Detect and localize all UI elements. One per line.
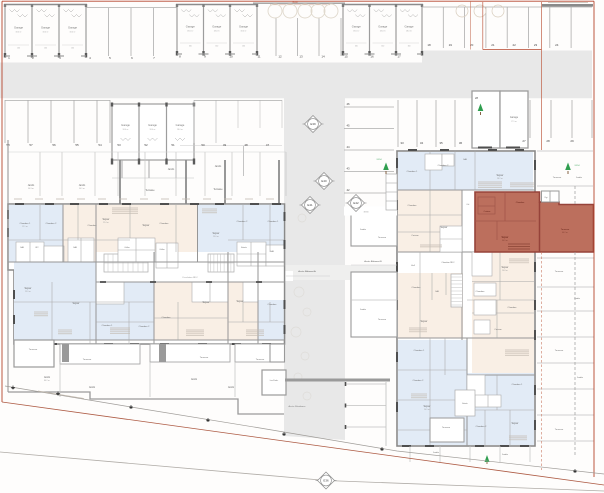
svg-text:18.0 m²: 18.0 m² xyxy=(122,128,128,131)
svg-text:33: 33 xyxy=(400,141,404,145)
svg-text:Jardin: Jardin xyxy=(89,386,96,389)
svg-text:Jardin: Jardin xyxy=(79,184,86,187)
svg-text:Garage: Garage xyxy=(41,25,50,29)
svg-text:Chambre 2: Chambre 2 xyxy=(139,325,151,328)
svg-text:18.0 m²: 18.0 m² xyxy=(214,29,220,32)
svg-text:16: 16 xyxy=(370,55,374,59)
svg-text:Cel.: Cel. xyxy=(466,204,470,206)
svg-text:18.0 m²: 18.0 m² xyxy=(42,30,48,33)
svg-text:38.80: 38.80 xyxy=(363,212,369,214)
svg-text:Jardin: Jardin xyxy=(191,378,198,381)
svg-text:Terrasse: Terrasse xyxy=(442,426,451,429)
svg-text:Chambre 1: Chambre 1 xyxy=(102,324,114,327)
svg-text:12: 12 xyxy=(278,55,282,59)
svg-text:Cellier: Cellier xyxy=(124,246,130,249)
svg-text:Terrasse: Terrasse xyxy=(555,349,564,352)
svg-text:49: 49 xyxy=(223,143,227,147)
svg-text:E39: E39 xyxy=(310,122,316,126)
svg-text:Séjour: Séjour xyxy=(441,226,448,229)
svg-text:Chambre: Chambre xyxy=(160,222,170,225)
svg-text:86.2 m²: 86.2 m² xyxy=(44,379,50,382)
svg-text:57: 57 xyxy=(29,143,33,147)
svg-text:Garage: Garage xyxy=(121,123,130,127)
svg-text:Jardin: Jardin xyxy=(228,386,235,389)
svg-text:Garage: Garage xyxy=(176,123,185,127)
svg-text:Chambre: Chambre xyxy=(162,316,172,319)
svg-text:Chambre 2: Chambre 2 xyxy=(413,379,425,382)
svg-text:Terrasse: Terrasse xyxy=(378,236,387,239)
svg-text:Jardin: Jardin xyxy=(576,176,583,179)
svg-text:35: 35 xyxy=(439,141,443,145)
svg-text:Séjour: Séjour xyxy=(25,287,32,290)
svg-text:Garage: Garage xyxy=(68,25,77,29)
svg-text:E40: E40 xyxy=(321,179,327,183)
svg-text:Terrasse: Terrasse xyxy=(555,270,564,273)
svg-text:28.2 m²: 28.2 m² xyxy=(497,177,503,180)
svg-text:Garage: Garage xyxy=(510,116,519,119)
svg-text:18.0 m²: 18.0 m² xyxy=(149,128,155,131)
svg-text:50: 50 xyxy=(201,143,205,147)
svg-text:Garage: Garage xyxy=(186,24,195,28)
svg-text:24.9 m²: 24.9 m² xyxy=(424,408,430,411)
svg-text:24.54: 24.54 xyxy=(376,159,382,161)
svg-text:10: 10 xyxy=(229,55,233,59)
svg-text:18.0 m²: 18.0 m² xyxy=(69,30,75,33)
svg-text:Chambre 1: Chambre 1 xyxy=(20,222,32,225)
svg-text:18: 18 xyxy=(427,43,431,47)
svg-text:11: 11 xyxy=(257,55,260,59)
svg-text:29: 29 xyxy=(570,139,574,143)
svg-text:Jardin: Jardin xyxy=(502,453,509,456)
svg-text:46: 46 xyxy=(346,102,350,106)
svg-text:160: 160 xyxy=(44,48,47,50)
svg-text:Chambre: Chambre xyxy=(516,201,525,204)
svg-text:Cuisine: Cuisine xyxy=(411,235,419,237)
svg-text:Chambre: Chambre xyxy=(476,290,486,293)
svg-text:34: 34 xyxy=(420,141,424,145)
svg-text:54: 54 xyxy=(98,143,102,147)
svg-text:Séjour: Séjour xyxy=(203,301,210,304)
svg-text:Jardin: Jardin xyxy=(577,376,584,379)
svg-text:35.60: 35.60 xyxy=(292,2,298,4)
svg-text:13: 13 xyxy=(299,55,303,59)
svg-text:Cellier: Cellier xyxy=(159,248,165,251)
svg-text:160: 160 xyxy=(381,46,384,48)
svg-text:Terrasse: Terrasse xyxy=(555,428,564,431)
svg-text:E36: E36 xyxy=(323,479,329,483)
svg-text:18.0 m²: 18.0 m² xyxy=(380,29,386,32)
svg-text:53: 53 xyxy=(117,143,121,147)
svg-text:Cuisine: Cuisine xyxy=(494,329,502,331)
svg-text:24: 24 xyxy=(555,43,559,47)
svg-text:Garage: Garage xyxy=(148,123,157,127)
svg-text:Accès Bâtiment A: Accès Bâtiment A xyxy=(298,270,316,273)
svg-text:Séjour: Séjour xyxy=(143,224,150,227)
svg-text:21: 21 xyxy=(491,43,495,47)
svg-text:Chambre 2: Chambre 2 xyxy=(46,222,58,225)
svg-text:56: 56 xyxy=(52,143,56,147)
svg-text:Séjour: Séjour xyxy=(502,266,509,269)
svg-text:Chambre: Chambre xyxy=(88,224,98,227)
svg-text:18.0 m²: 18.0 m² xyxy=(353,29,359,32)
svg-text:55: 55 xyxy=(75,143,79,147)
svg-text:160: 160 xyxy=(242,46,245,48)
svg-text:Terrasse: Terrasse xyxy=(145,189,155,192)
svg-text:Terrasse: Terrasse xyxy=(213,188,223,191)
svg-text:26.8 m²: 26.8 m² xyxy=(502,269,508,272)
svg-text:Chambre 2: Chambre 2 xyxy=(476,425,488,428)
svg-text:Garage: Garage xyxy=(212,24,221,28)
svg-text:Terrasse: Terrasse xyxy=(29,348,38,351)
svg-text:44: 44 xyxy=(346,145,350,149)
svg-text:Séjour: Séjour xyxy=(421,320,428,323)
svg-text:48: 48 xyxy=(244,143,248,147)
svg-text:19: 19 xyxy=(449,43,453,47)
svg-text:45: 45 xyxy=(346,124,350,128)
svg-text:Séjour: Séjour xyxy=(213,232,220,235)
svg-text:28: 28 xyxy=(546,139,550,143)
svg-text:50.1 m²: 50.1 m² xyxy=(79,187,85,190)
svg-text:Jardin: Jardin xyxy=(44,376,51,379)
svg-text:52: 52 xyxy=(144,143,148,147)
svg-text:Terrasse: Terrasse xyxy=(378,318,387,321)
svg-text:Entrée: Entrée xyxy=(241,246,247,249)
svg-text:Accès Bâtiment B: Accès Bâtiment B xyxy=(364,260,382,263)
svg-text:Garage: Garage xyxy=(239,24,248,28)
svg-text:Jardin: Jardin xyxy=(360,228,367,231)
svg-text:24.54: 24.54 xyxy=(574,165,580,167)
svg-text:Terrasse: Terrasse xyxy=(200,356,209,359)
svg-text:Chambre 1: Chambre 1 xyxy=(268,220,280,223)
svg-text:160: 160 xyxy=(408,46,411,48)
svg-text:Garage: Garage xyxy=(405,24,414,28)
svg-text:15: 15 xyxy=(344,55,348,59)
svg-text:E42: E42 xyxy=(353,201,359,205)
svg-text:Cuisine: Cuisine xyxy=(484,211,492,213)
svg-text:Chambre: Chambre xyxy=(412,286,422,289)
svg-text:Chambre RDC: Chambre RDC xyxy=(441,262,455,264)
svg-text:Terrasse: Terrasse xyxy=(561,228,570,231)
svg-text:Séjour: Séjour xyxy=(73,302,80,305)
svg-text:42: 42 xyxy=(346,188,350,192)
svg-text:Garage: Garage xyxy=(14,25,23,29)
svg-text:18.0 m²: 18.0 m² xyxy=(187,29,193,32)
svg-text:Séjour: Séjour xyxy=(497,174,504,177)
svg-text:Chambre 2: Chambre 2 xyxy=(438,164,450,167)
svg-text:160: 160 xyxy=(71,48,74,50)
svg-text:160: 160 xyxy=(215,46,218,48)
svg-text:Jardin: Jardin xyxy=(168,168,175,171)
svg-text:Chambre 1: Chambre 1 xyxy=(407,170,419,173)
svg-text:Garage: Garage xyxy=(352,24,361,28)
svg-text:Terrasse: Terrasse xyxy=(553,176,562,179)
svg-text:18.0 m²: 18.0 m² xyxy=(406,29,412,32)
svg-text:Séjour: Séjour xyxy=(502,236,509,239)
svg-text:12.1 m²: 12.1 m² xyxy=(22,225,28,228)
svg-text:Séjour: Séjour xyxy=(424,405,431,408)
svg-text:43: 43 xyxy=(346,167,350,171)
svg-text:17.5 m²: 17.5 m² xyxy=(511,120,517,123)
svg-text:23: 23 xyxy=(534,43,538,47)
svg-text:Jardin: Jardin xyxy=(215,165,222,168)
svg-text:160: 160 xyxy=(355,46,358,48)
svg-text:14: 14 xyxy=(321,55,325,59)
svg-text:Séjour: Séjour xyxy=(512,422,519,425)
svg-text:Chambre: Chambre xyxy=(508,306,518,309)
svg-text:22.4 m²: 22.4 m² xyxy=(103,221,109,224)
svg-text:Chambre: Chambre xyxy=(408,204,418,207)
svg-text:Circulation RDC: Circulation RDC xyxy=(182,276,198,279)
svg-text:47: 47 xyxy=(266,143,270,147)
svg-text:160: 160 xyxy=(17,48,20,50)
svg-text:Garage: Garage xyxy=(378,24,387,28)
svg-text:Jardin: Jardin xyxy=(360,308,367,311)
svg-text:Chambre: Chambre xyxy=(268,303,278,306)
svg-text:Chambre 1: Chambre 1 xyxy=(512,383,524,386)
svg-text:17: 17 xyxy=(397,55,401,59)
svg-text:Jardin: Jardin xyxy=(433,451,440,454)
svg-text:36: 36 xyxy=(459,141,463,145)
svg-text:22: 22 xyxy=(513,43,517,47)
svg-text:Chambre 2: Chambre 2 xyxy=(237,220,249,223)
svg-text:23.0 m²: 23.0 m² xyxy=(213,235,219,238)
svg-text:Accès Résidence: Accès Résidence xyxy=(289,405,307,408)
svg-text:Entrée: Entrée xyxy=(462,402,467,405)
svg-text:Séjour: Séjour xyxy=(237,300,244,303)
svg-text:25.9 m²: 25.9 m² xyxy=(25,290,31,293)
svg-text:51: 51 xyxy=(171,143,175,147)
svg-text:E41: E41 xyxy=(307,203,313,207)
svg-text:18.0 m²: 18.0 m² xyxy=(15,30,21,33)
svg-text:54.3 m²: 54.3 m² xyxy=(28,187,34,190)
svg-text:160: 160 xyxy=(189,46,192,48)
svg-text:Hall: Hall xyxy=(411,265,415,267)
svg-text:Loc.Poub.: Loc.Poub. xyxy=(270,380,279,382)
svg-text:Jardin: Jardin xyxy=(28,184,35,187)
svg-text:Terrasse: Terrasse xyxy=(83,358,92,361)
svg-text:27: 27 xyxy=(522,139,526,143)
svg-text:Chambre 1: Chambre 1 xyxy=(414,349,426,352)
svg-text:18.0 m²: 18.0 m² xyxy=(240,29,246,32)
svg-text:Terrasse: Terrasse xyxy=(256,358,265,361)
svg-text:18.0 m²: 18.0 m² xyxy=(177,128,183,131)
svg-text:30.9 m²: 30.9 m² xyxy=(502,239,508,242)
svg-text:Séjour: Séjour xyxy=(103,218,110,221)
svg-text:44.2 m²: 44.2 m² xyxy=(562,231,568,234)
